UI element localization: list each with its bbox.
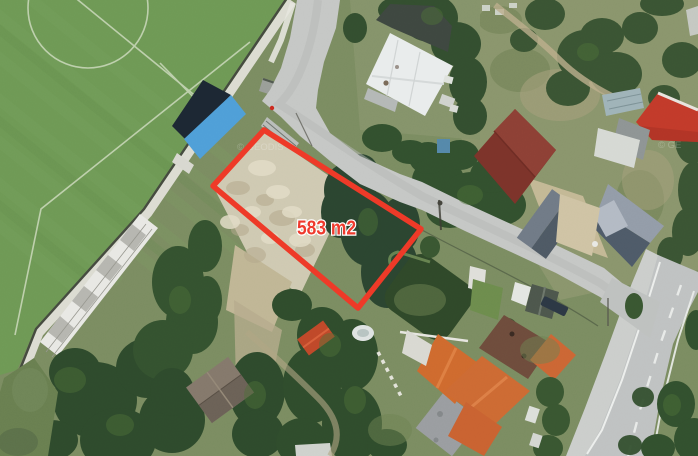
svg-text:583 m2: 583 m2: [297, 217, 356, 240]
